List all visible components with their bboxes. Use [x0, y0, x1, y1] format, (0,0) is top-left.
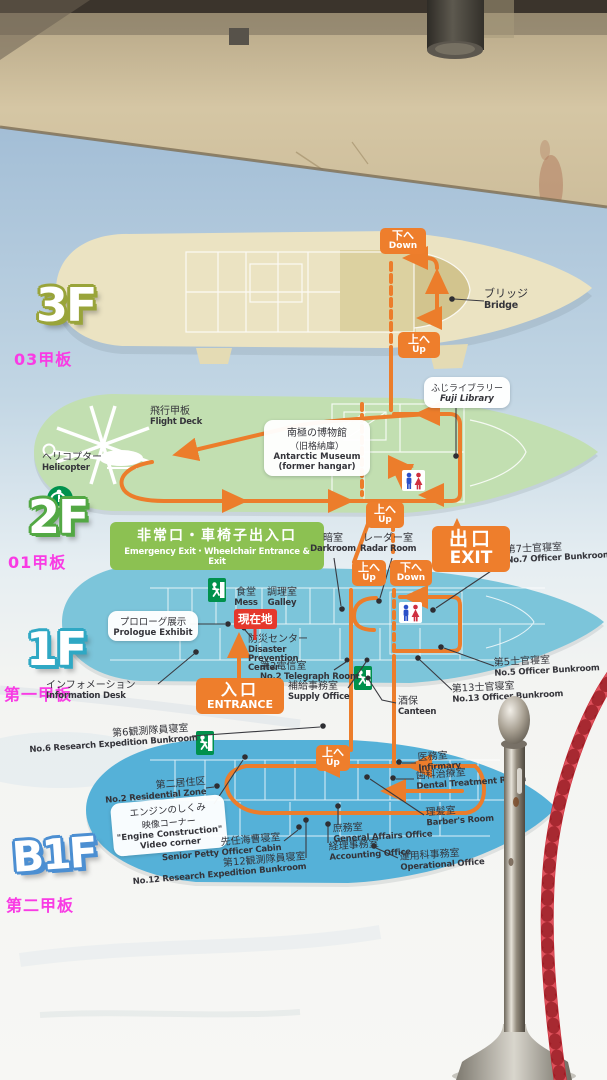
red-barrier-rope: [547, 676, 607, 1080]
foreground-objects: [0, 0, 607, 1080]
stanchion-knob: [498, 696, 530, 744]
photo-of-ship-floor-guide: { "colors":{"route_orange":"#ec7d2b","ma…: [0, 0, 607, 1080]
